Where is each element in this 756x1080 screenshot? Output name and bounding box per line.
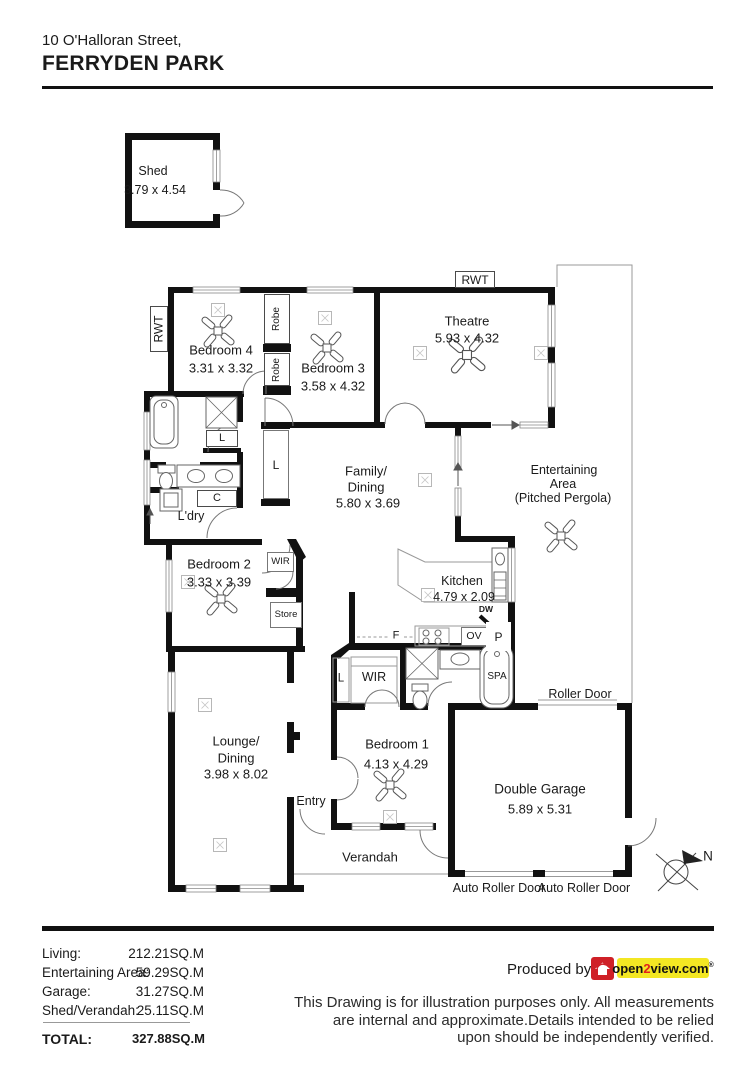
wir2-door xyxy=(276,572,293,589)
store-box: Store xyxy=(270,602,302,628)
ensuite-basin xyxy=(440,650,480,669)
ensuite-door xyxy=(428,682,452,706)
bedroom4-name: Bedroom 4 xyxy=(189,344,253,357)
roller-door-lines xyxy=(538,700,617,705)
bedroom2-name: Bedroom 2 xyxy=(187,558,251,571)
logo-text-open: open xyxy=(612,961,643,976)
pantry-box: P xyxy=(486,622,511,651)
wir-bed2-label: WIR xyxy=(271,557,289,567)
entertaining-name-1: Entertaining xyxy=(531,464,598,477)
verandah-door xyxy=(420,830,448,858)
robe-top-label: Robe xyxy=(272,307,282,331)
family-name-1: Family/ xyxy=(345,465,387,478)
bedroom1-dims: 4.13 x 4.29 xyxy=(364,758,428,771)
shed-double-door xyxy=(220,190,244,216)
shed-name: Shed xyxy=(138,165,167,178)
total-value: 327.88SQ.M xyxy=(112,1031,205,1046)
bath-tub xyxy=(150,396,178,448)
summary-divider xyxy=(43,1022,190,1023)
entry-label: Entry xyxy=(296,795,325,808)
kitchen-dims: 4.79 x 2.09 xyxy=(433,591,495,604)
cooktop-burners xyxy=(423,630,441,644)
bedroom1-double-door xyxy=(337,757,358,800)
rwt-left-box: RWT xyxy=(150,306,168,352)
kitchen-name: Kitchen xyxy=(441,575,483,588)
auto-roller-door-right-label: Auto Roller Door xyxy=(538,882,630,895)
hall-door xyxy=(265,398,293,426)
ceiling-fan-icons xyxy=(201,314,578,802)
bedroom2-dims: 3.33 x 3.39 xyxy=(187,576,251,589)
rwt-top-box: RWT xyxy=(455,271,495,288)
laundry-name: L'dry xyxy=(178,510,205,523)
robe-bottom-box: Robe xyxy=(264,353,290,386)
linen-bath-box: L xyxy=(206,430,238,447)
footer-rule xyxy=(42,926,714,931)
garage-side-door xyxy=(628,818,656,846)
wir-bed1-label: WIR xyxy=(362,671,386,684)
laundry-trough xyxy=(160,489,182,511)
disclaimer-line-2: are internal and approximate.Details int… xyxy=(284,1012,714,1030)
floorplan-page: 10 O'Halloran Street, FERRYDEN PARK xyxy=(0,0,756,1080)
summary-row-label: Living: xyxy=(42,946,81,961)
family-dims: 5.80 x 3.69 xyxy=(336,497,400,510)
garage-name: Double Garage xyxy=(494,782,586,796)
summary-row-value: 31.27SQ.M xyxy=(112,984,204,999)
oven-label: OV xyxy=(466,631,481,642)
pantry-label: P xyxy=(494,631,502,643)
robe-bottom-label: Robe xyxy=(272,358,282,382)
summary-row-value: 212.21SQ.M xyxy=(112,946,204,961)
dishwasher-label: DW xyxy=(479,605,493,614)
disclaimer-line-3: upon should be independently verified. xyxy=(284,1029,714,1047)
logo-text-view: view.com xyxy=(651,961,709,976)
oven-box: OV xyxy=(461,627,487,646)
bath-shower xyxy=(206,397,237,428)
bedroom4-dims: 3.31 x 3.32 xyxy=(189,362,253,375)
linen-bath-label: L xyxy=(219,433,225,444)
theatre-name: Theatre xyxy=(445,315,490,328)
auto-roller-door-left-label: Auto Roller Door xyxy=(453,882,545,895)
bedroom3-dims: 3.58 x 4.32 xyxy=(301,380,365,393)
robe-top-box: Robe xyxy=(264,294,290,344)
toilet-main xyxy=(158,465,175,490)
store-label: Store xyxy=(275,610,298,620)
family-name-2: Dining xyxy=(348,481,385,494)
total-label: TOTAL: xyxy=(42,1031,92,1047)
entertaining-name-3: (Pitched Pergola) xyxy=(515,492,612,505)
logo-text-reg: ® xyxy=(709,962,714,969)
theatre-dims: 5.93 x 4.32 xyxy=(435,332,499,345)
ensuite-shower xyxy=(406,648,438,679)
vanity-twin xyxy=(177,465,240,487)
bedroom1-name: Bedroom 1 xyxy=(365,738,429,751)
disclaimer-line-1: This Drawing is for illustration purpose… xyxy=(284,994,714,1012)
rwt-top-label: RWT xyxy=(461,274,488,286)
entertaining-name-2: Area xyxy=(550,478,576,491)
house-icon xyxy=(594,961,611,976)
linen-hall-label: L xyxy=(273,459,280,471)
summary-row-label: Garage: xyxy=(42,984,91,999)
floorplan-drawing xyxy=(0,0,756,1080)
cupboard-box: C xyxy=(197,490,237,507)
disclaimer-text: This Drawing is for illustration purpose… xyxy=(284,994,714,1047)
verandah-label: Verandah xyxy=(342,851,398,864)
garage-dims: 5.89 x 5.31 xyxy=(508,803,572,816)
open2view-house-icon xyxy=(591,957,614,980)
linen-hall-box: L xyxy=(263,430,289,499)
north-label: N xyxy=(703,849,713,863)
wir-bed2-box: WIR xyxy=(267,552,294,572)
shed-dims: 3.79 x 4.54 xyxy=(124,184,186,197)
lounge-name-1: Lounge/ xyxy=(213,735,260,748)
open2view-logo: open2view.com® xyxy=(617,958,709,978)
rwt-left-label: RWT xyxy=(153,315,165,342)
summary-row-value: 59.29SQ.M xyxy=(112,965,204,980)
compass-icon xyxy=(656,850,703,891)
fridge-label: F xyxy=(393,631,400,642)
summary-row-value: 25.11SQ.M xyxy=(112,1003,204,1018)
auto-roller-left-lines xyxy=(465,872,533,877)
logo-text-2: 2 xyxy=(643,961,650,976)
wir1-double-door xyxy=(365,690,399,707)
bedroom3-name: Bedroom 3 xyxy=(301,362,365,375)
linen-bed1-label: L xyxy=(338,673,344,685)
entry-door xyxy=(300,809,325,834)
cupboard-label: C xyxy=(213,493,221,504)
ensuite-toilet xyxy=(412,684,428,709)
theatre-double-door xyxy=(385,403,425,424)
lounge-name-2: Dining xyxy=(218,752,255,765)
spa-label: SPA xyxy=(487,672,506,682)
lounge-dims: 3.98 x 8.02 xyxy=(204,768,268,781)
auto-roller-right-lines xyxy=(545,872,613,877)
produced-by-label: Produced by xyxy=(507,961,591,978)
laundry-door xyxy=(207,508,237,538)
roller-door-label: Roller Door xyxy=(548,688,611,701)
